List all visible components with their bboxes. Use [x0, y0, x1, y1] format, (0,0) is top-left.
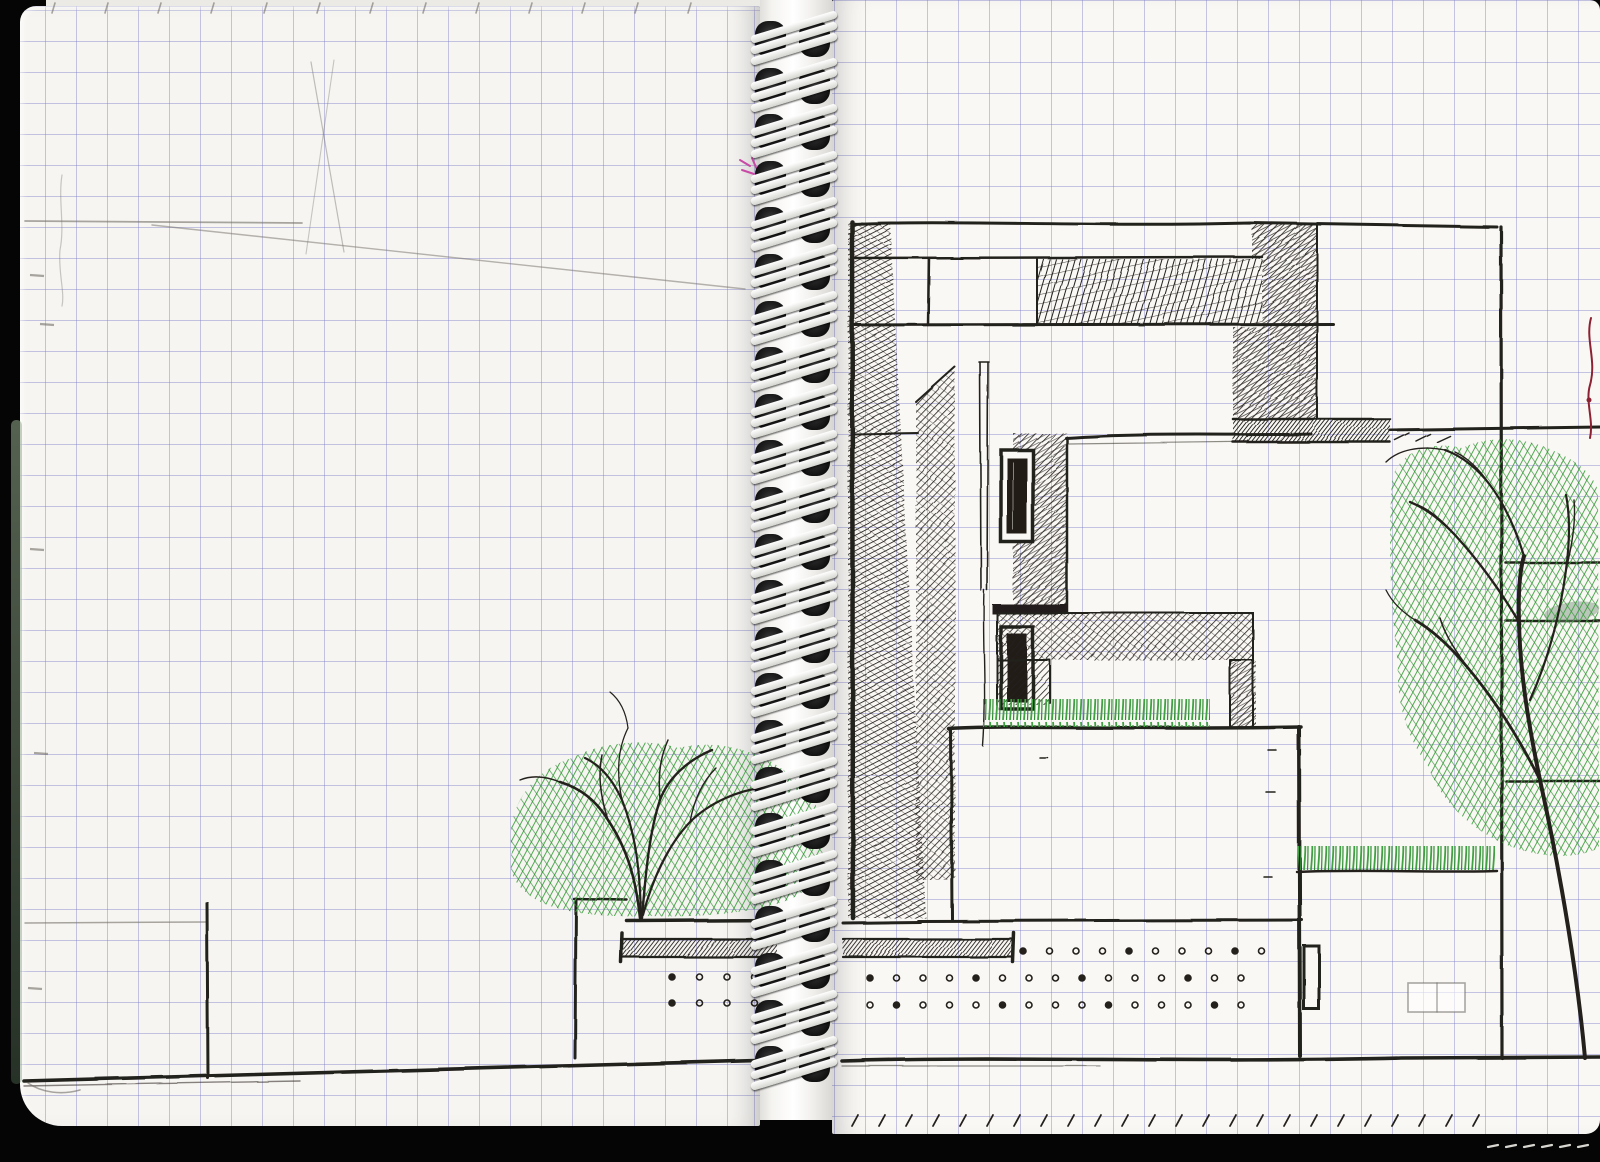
edge-tick: [1488, 1145, 1498, 1147]
left-page: [20, 6, 760, 1126]
page-stack-fore-edge: [11, 420, 22, 1084]
edge-tick: [1560, 1145, 1570, 1147]
spine-gap: [760, 0, 832, 1120]
edge-tick: [1506, 1145, 1516, 1147]
right-page: [832, 0, 1600, 1134]
edge-tick: [1542, 1145, 1552, 1147]
notebook-scan: [0, 0, 1600, 1162]
edge-tick: [1578, 1145, 1588, 1147]
edge-tick: [1524, 1145, 1534, 1147]
